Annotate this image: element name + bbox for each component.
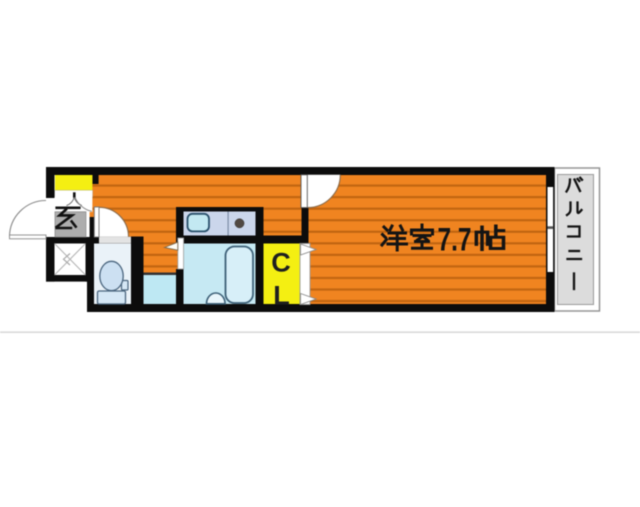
svg-text:7.7: 7.7 [438,222,472,258]
svg-text:L: L [273,281,290,311]
svg-text:C: C [271,248,291,278]
